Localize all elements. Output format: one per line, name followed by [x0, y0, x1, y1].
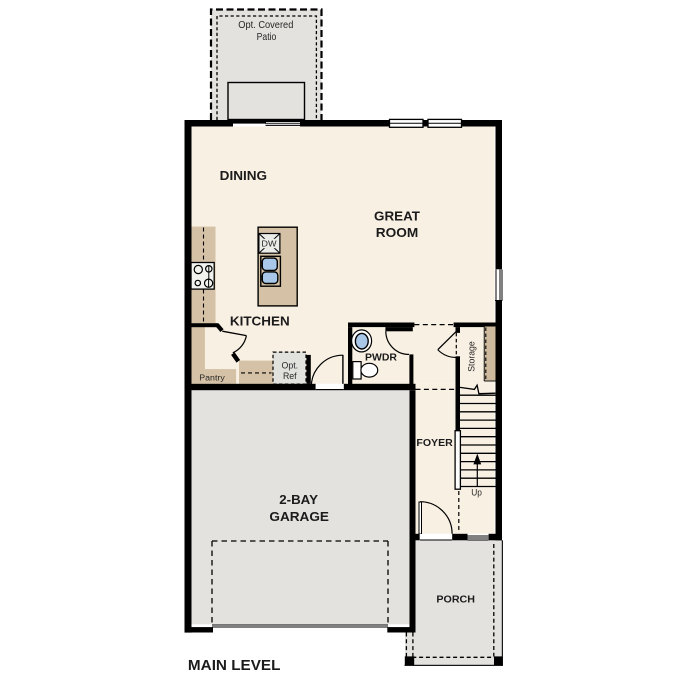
svg-text:DINING: DINING: [220, 168, 267, 183]
svg-text:ROOM: ROOM: [376, 225, 419, 240]
svg-text:Opt. Covered: Opt. Covered: [238, 20, 293, 31]
svg-text:2-BAY: 2-BAY: [279, 492, 318, 507]
svg-text:Opt.: Opt.: [281, 361, 298, 371]
svg-text:PWDR: PWDR: [365, 352, 397, 363]
svg-text:DW: DW: [261, 238, 277, 248]
svg-text:FOYER: FOYER: [416, 438, 453, 449]
svg-text:Storage: Storage: [466, 341, 476, 372]
svg-text:Ref: Ref: [283, 371, 297, 381]
svg-text:Patio: Patio: [257, 32, 277, 43]
svg-text:Up: Up: [471, 487, 482, 497]
svg-text:GARAGE: GARAGE: [269, 509, 329, 524]
svg-text:Pantry: Pantry: [199, 372, 225, 382]
svg-text:GREAT: GREAT: [374, 209, 420, 224]
svg-text:KITCHEN: KITCHEN: [230, 313, 290, 328]
svg-text:PORCH: PORCH: [436, 595, 475, 606]
svg-text:MAIN LEVEL: MAIN LEVEL: [188, 658, 281, 674]
